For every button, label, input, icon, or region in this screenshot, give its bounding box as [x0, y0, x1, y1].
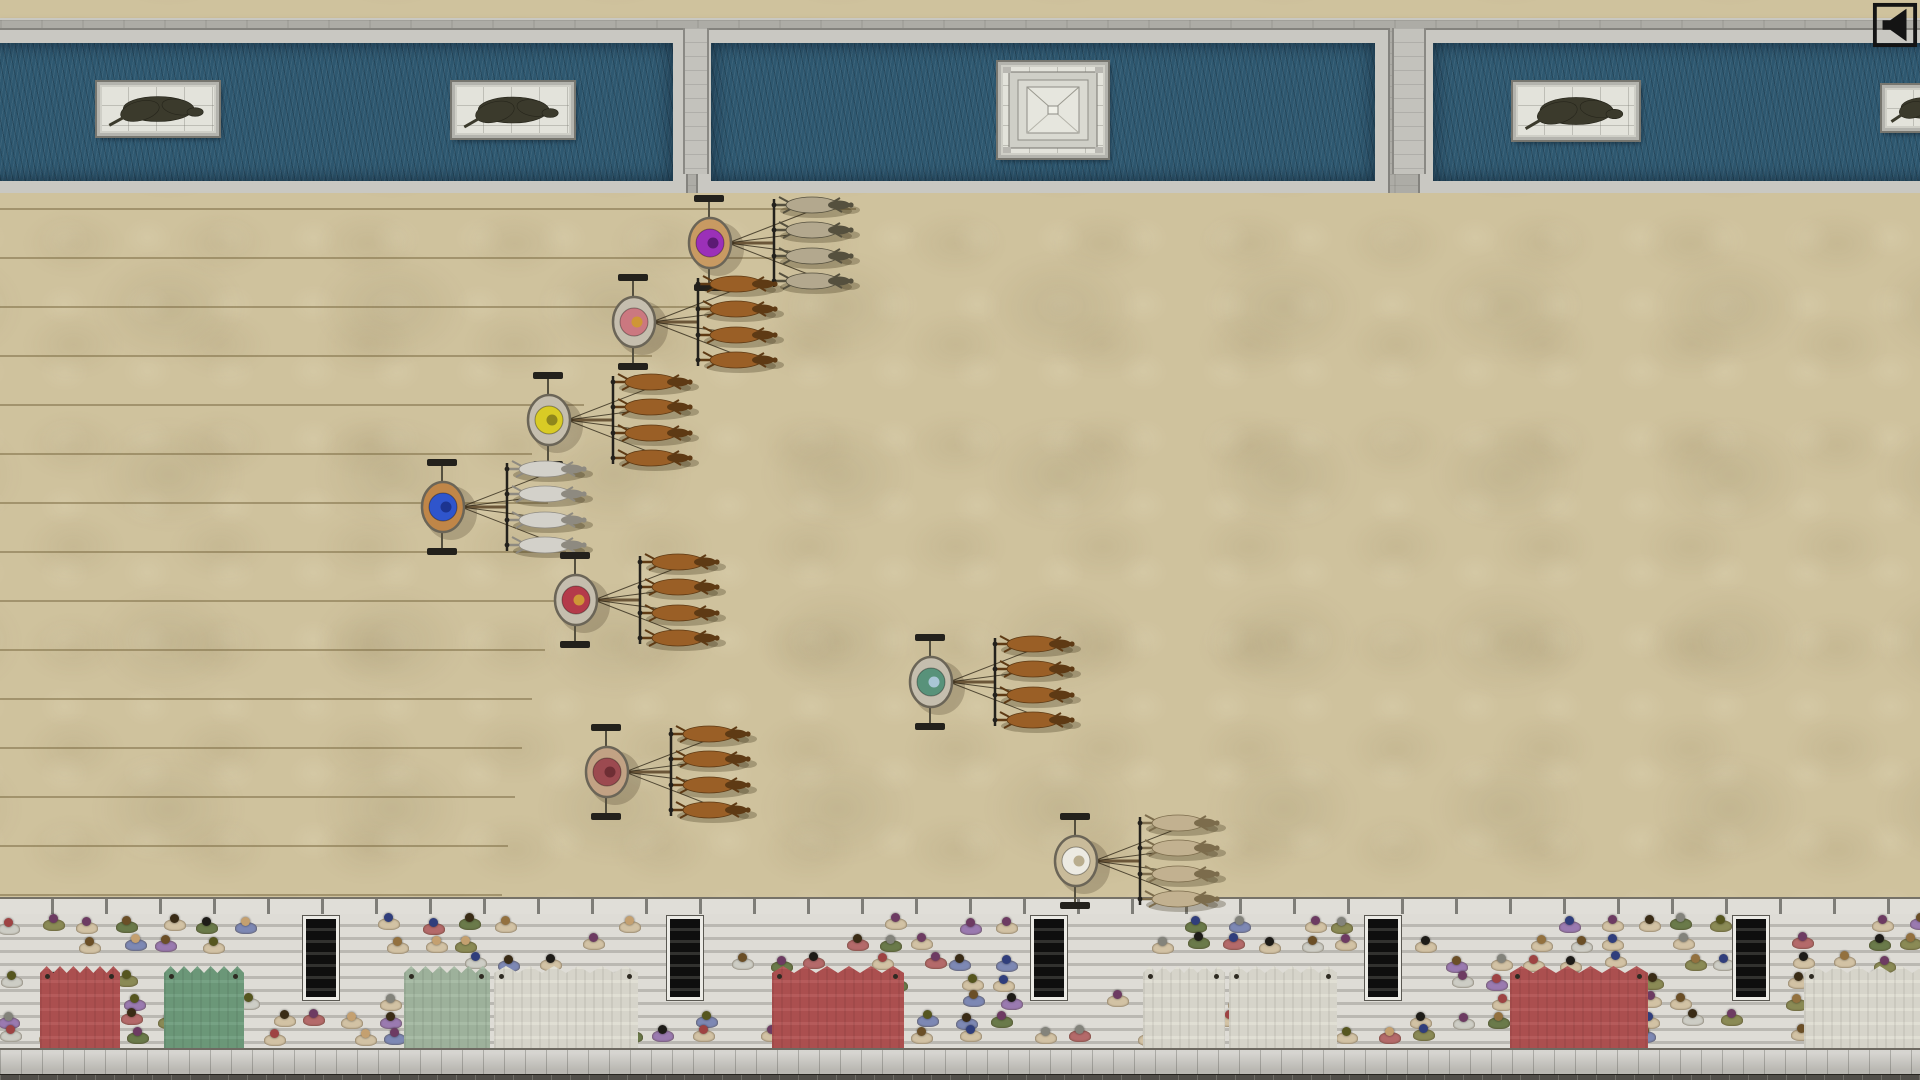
spectator [1710, 915, 1732, 932]
spectator-stands [0, 914, 1920, 1048]
spectator [925, 952, 947, 969]
spectator [43, 914, 65, 931]
spectator [960, 1025, 982, 1042]
speaker-icon [1872, 2, 1918, 48]
lane-line [0, 649, 545, 651]
lane-line [0, 796, 515, 798]
spectator [847, 934, 869, 951]
spectator [76, 917, 98, 934]
spectator [1152, 937, 1174, 954]
awning-banner [1510, 966, 1648, 1048]
spectator [885, 913, 907, 930]
spina-junction-pillar [683, 28, 709, 174]
spectator [1331, 917, 1353, 934]
spectator [1486, 974, 1508, 991]
spectator [1413, 1024, 1435, 1041]
spectator [1415, 936, 1437, 953]
far-track-strip [0, 0, 1920, 18]
spectator [963, 990, 985, 1007]
spectator [235, 917, 257, 934]
spectator [459, 913, 481, 930]
spectator [116, 916, 138, 933]
spectator [872, 953, 894, 970]
spectator [1685, 954, 1707, 971]
awning-banner [1143, 966, 1225, 1048]
spectator [583, 933, 605, 950]
spectator [911, 1027, 933, 1044]
spectator [355, 1029, 377, 1046]
spectator [495, 916, 517, 933]
spectator [1721, 1009, 1743, 1026]
spectator [1605, 951, 1627, 968]
spectator [996, 955, 1018, 972]
spectator [911, 933, 933, 950]
spectator [619, 916, 641, 933]
spectator [125, 934, 147, 951]
spectator [652, 1025, 674, 1042]
spectator [991, 1011, 1013, 1028]
outer-wall-band [0, 1074, 1920, 1080]
water-pool [1420, 30, 1920, 194]
awning-banner [772, 966, 904, 1048]
spectator [1305, 916, 1327, 933]
spectator [1834, 951, 1856, 968]
mute-button[interactable] [1872, 2, 1918, 48]
lane-line [0, 404, 584, 406]
spectator [1872, 915, 1894, 932]
edge-statue [1882, 85, 1920, 131]
chariot-white[interactable] [1042, 803, 1242, 919]
stands-walkway [0, 1048, 1920, 1076]
spectator [1453, 1013, 1475, 1030]
spectator [1336, 1027, 1358, 1044]
spectator [121, 1008, 143, 1025]
spectator [1559, 916, 1581, 933]
game-viewport [0, 0, 1920, 1080]
lane-line [0, 355, 652, 357]
spectator [1910, 913, 1920, 930]
spectator [1682, 1009, 1704, 1026]
spina-junction-pillar [1392, 28, 1426, 174]
spectator [127, 1027, 149, 1044]
spectator [1900, 933, 1920, 950]
spectator [1531, 935, 1553, 952]
spectator [1670, 993, 1692, 1010]
spectator [0, 918, 20, 935]
spectator [1259, 937, 1281, 954]
awning-banner [1804, 966, 1920, 1048]
spectator [1713, 954, 1735, 971]
spectator [1491, 954, 1513, 971]
awning-banner [1229, 966, 1337, 1048]
stairwell-entrance [667, 916, 703, 1000]
spectator [1673, 933, 1695, 950]
spectator [693, 1025, 715, 1042]
spectator [1602, 915, 1624, 932]
spectator [917, 1010, 939, 1027]
lane-line [0, 600, 584, 602]
lane-line [0, 747, 522, 749]
equestrian-statue [97, 82, 219, 136]
chariot-red[interactable] [542, 542, 742, 658]
reclining-statue [1513, 82, 1639, 140]
spectator [1302, 936, 1324, 953]
spectator [203, 937, 225, 954]
lane-line [0, 845, 508, 847]
race-track [0, 193, 1920, 897]
stairwell-entrance [303, 916, 339, 1000]
spectator [164, 914, 186, 931]
standing-statue [452, 82, 574, 138]
pyramid-monument [998, 62, 1108, 158]
awning-banner [40, 966, 120, 1048]
chariot-maroon[interactable] [573, 714, 773, 830]
stairwell-entrance [1365, 916, 1401, 1000]
spectator [384, 1028, 406, 1045]
spectator [803, 952, 825, 969]
spina-barrier [0, 18, 1920, 195]
spectator [196, 917, 218, 934]
spectator [455, 936, 477, 953]
spectator [996, 917, 1018, 934]
spectator [1602, 934, 1624, 951]
lane-line [0, 698, 532, 700]
lane-line [0, 257, 788, 259]
spectator [1869, 934, 1891, 951]
spectator [1488, 1012, 1510, 1029]
spectator [1793, 952, 1815, 969]
spectator [1792, 932, 1814, 949]
spectator [1639, 915, 1661, 932]
spectator [380, 994, 402, 1011]
spectator [880, 935, 902, 952]
spectator [1, 971, 23, 988]
spectator [1670, 913, 1692, 930]
chariot-green[interactable] [897, 624, 1097, 740]
spectator [426, 936, 448, 953]
spectator [1379, 1027, 1401, 1044]
spectator [1223, 933, 1245, 950]
spectator [993, 975, 1015, 992]
spectator [1571, 936, 1593, 953]
spectator [962, 974, 984, 991]
stairwell-entrance [1031, 916, 1067, 1000]
spectator [423, 918, 445, 935]
spectator [303, 1009, 325, 1026]
lane-line [0, 894, 502, 896]
spectator [1001, 993, 1023, 1010]
spectator [1069, 1025, 1091, 1042]
spectator [341, 1012, 363, 1029]
spectator [387, 937, 409, 954]
spectator [264, 1029, 286, 1046]
spectator [274, 1010, 296, 1027]
spectator [732, 953, 754, 970]
awning-banner [404, 966, 490, 1048]
awning-banner [494, 966, 638, 1048]
spectator [1107, 990, 1129, 1007]
spectator [960, 918, 982, 935]
spectator [378, 913, 400, 930]
spectator [1035, 1027, 1057, 1044]
stairwell-entrance [1733, 916, 1769, 1000]
spectator [1335, 934, 1357, 951]
spectator [79, 937, 101, 954]
spectator [0, 1025, 22, 1042]
awning-banner [164, 966, 244, 1048]
spectator [155, 935, 177, 952]
spectator [1452, 971, 1474, 988]
spectator [1188, 932, 1210, 949]
spectator [380, 1012, 402, 1029]
spectator [949, 954, 971, 971]
